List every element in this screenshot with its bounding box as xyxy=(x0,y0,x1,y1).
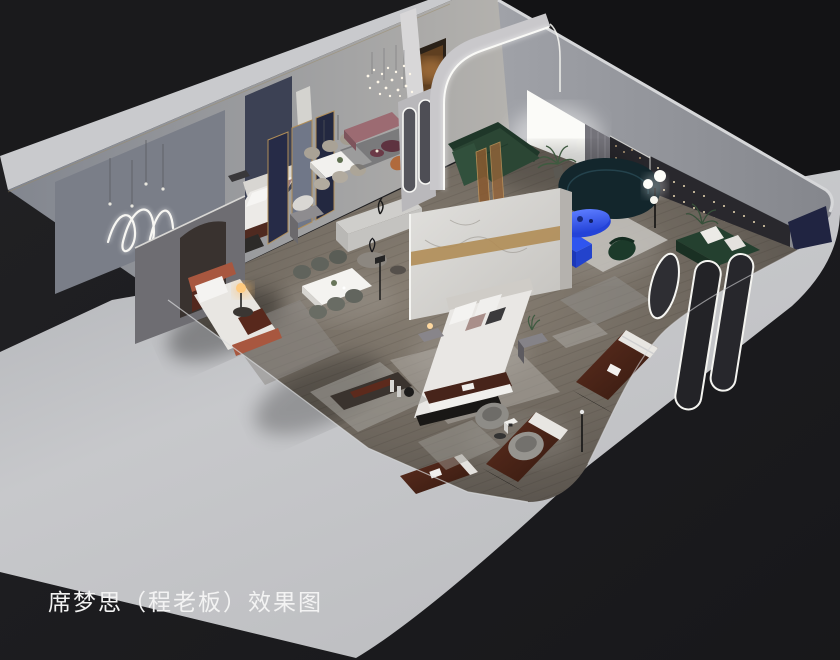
table-plant xyxy=(331,280,337,286)
sphere-table-lamp xyxy=(236,283,246,293)
dining-chair xyxy=(332,171,348,183)
logo-mark xyxy=(509,424,513,427)
glassware xyxy=(343,287,346,290)
dining-chair xyxy=(322,140,338,152)
lamp-glow xyxy=(643,174,667,198)
dining-chair xyxy=(314,178,330,190)
dining-chair xyxy=(304,147,320,159)
arched-pill-mirror xyxy=(403,108,416,192)
navy-screen-panel xyxy=(268,132,288,244)
dining-chair xyxy=(311,257,329,271)
side-table xyxy=(233,307,253,317)
table-plant xyxy=(337,157,343,163)
cylinder-lamp xyxy=(390,380,394,392)
side-table-base xyxy=(494,433,506,439)
wall-end-face xyxy=(560,188,572,290)
dining-chair xyxy=(309,305,327,319)
rendering-canvas: 席梦思（程老板）效果图 xyxy=(0,0,840,660)
dining-chair xyxy=(345,289,363,303)
cylinder-lamp xyxy=(397,386,401,397)
nightstand-lamp xyxy=(427,323,433,329)
dark-lamp xyxy=(404,387,414,397)
isometric-showroom-rendering xyxy=(0,0,840,660)
candle xyxy=(376,150,379,153)
dining-chair xyxy=(329,250,347,264)
table-decor xyxy=(589,219,593,223)
dining-chair xyxy=(293,265,311,279)
dining-chair xyxy=(327,297,345,311)
stool xyxy=(390,266,406,275)
table-decor xyxy=(577,216,583,222)
pole-lamp-head xyxy=(580,410,584,414)
caption: 席梦思（程老板）效果图 xyxy=(48,583,323,617)
